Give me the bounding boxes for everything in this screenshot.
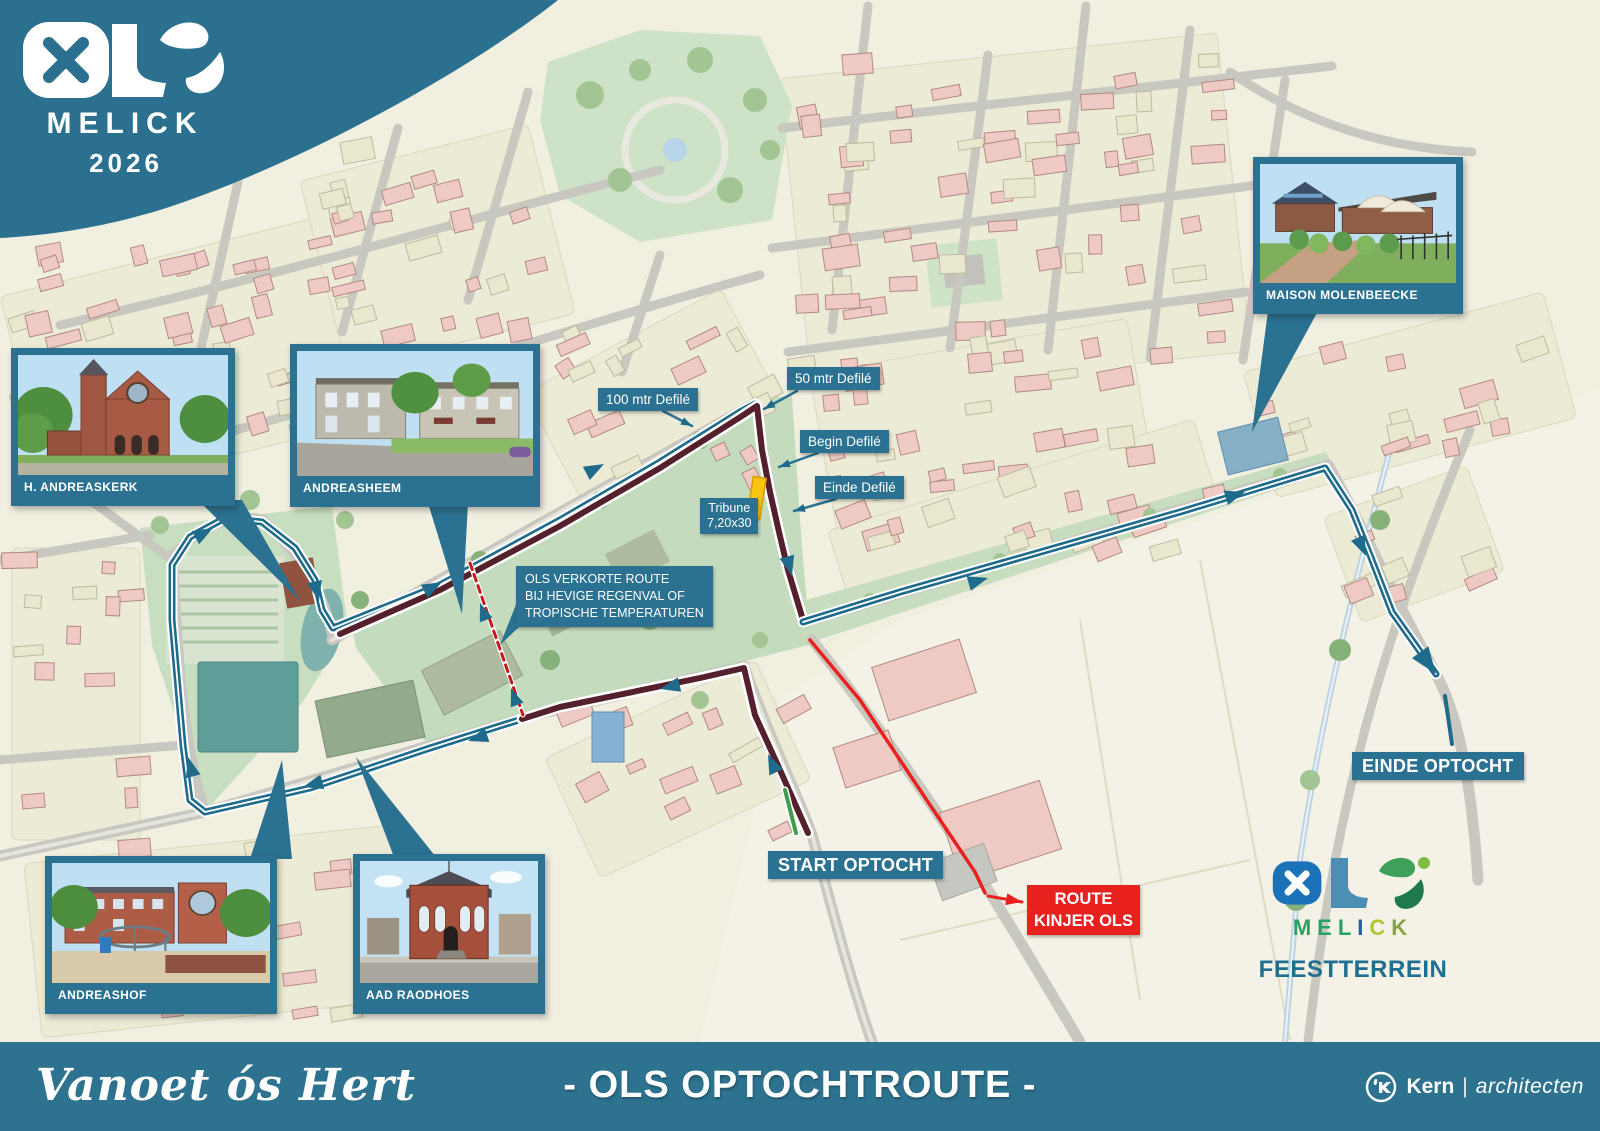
ols-optochtroute-poster: MELICK 2026 100 mtr Defilé 50 mtr Defilé…	[0, 0, 1600, 1131]
label-verkorte-route: OLS VERKORTE ROUTE BIJ HEVIGE REGENVAL O…	[516, 566, 713, 627]
ols-logo-o-icon	[1271, 856, 1325, 910]
label-kinjer-line2: KINJER OLS	[1034, 910, 1133, 932]
credit-kern: Kern	[1406, 1075, 1454, 1099]
banner-year: 2026	[89, 148, 163, 178]
label-verkorte-line1: OLS VERKORTE ROUTE	[525, 571, 704, 588]
label-einde-defile: Einde Defilé	[815, 476, 904, 499]
feestterrein-caption: FEESTTERREIN	[1248, 956, 1458, 984]
poster-title: - OLS OPTOCHTROUTE -	[563, 1064, 1036, 1107]
inset-caption: ANDREASHEEM	[297, 476, 533, 500]
inset-aad-raodhoes: AAD RAODHOES	[353, 854, 545, 1014]
aad-raodhoes-photo	[360, 861, 538, 983]
ols-logo-ls-icon	[1327, 854, 1435, 912]
inset-caption: MAISON MOLENBEECKE	[1260, 283, 1456, 307]
credit-architecten: architecten	[1476, 1075, 1584, 1099]
label-begin-defile: Begin Defilé	[800, 430, 889, 453]
inset-h-andreaskerk: H. ANDREASKERK	[11, 348, 235, 506]
label-tribune-line2: 7,20x30	[707, 516, 751, 531]
maison-molenbeecke-photo	[1260, 164, 1456, 283]
andreasheem-photo	[297, 351, 533, 476]
credit-separator: |	[1462, 1075, 1467, 1099]
andreashof-photo	[52, 863, 270, 983]
label-verkorte-line2: BIJ HEVIGE REGENVAL OF	[525, 588, 704, 605]
inset-andreashof: ANDREASHOF	[45, 856, 277, 1014]
feest-melick-wordmark: MELICK	[1248, 916, 1458, 940]
inset-caption: H. ANDREASKERK	[18, 475, 228, 499]
h-andreaskerk-photo	[18, 355, 228, 475]
inset-andreasheem: ANDREASHEEM	[290, 344, 540, 507]
label-100-mtr-defile: 100 mtr Defilé	[598, 388, 698, 411]
label-tribune-line1: Tribune	[707, 501, 751, 516]
label-route-kinjer-ols: ROUTE KINJER OLS	[1027, 885, 1140, 935]
kern-logo-icon	[1364, 1070, 1398, 1104]
label-tribune: Tribune 7,20x30	[700, 498, 758, 534]
label-verkorte-line3: TROPISCHE TEMPERATUREN	[525, 605, 704, 622]
inset-caption: ANDREASHOF	[52, 983, 270, 1007]
ols-melick-color-logo	[1248, 854, 1458, 912]
banner-place: MELICK	[47, 107, 204, 140]
label-kinjer-line1: ROUTE	[1034, 888, 1133, 910]
feestterrein-logo: MELICK FEESTTERREIN	[1248, 854, 1458, 984]
inset-maison-molenbeecke: MAISON MOLENBEECKE	[1253, 157, 1463, 314]
inset-caption: AAD RAODHOES	[360, 983, 538, 1007]
label-50-mtr-defile: 50 mtr Defilé	[787, 367, 880, 390]
footer-bar: Vanoet ós Hert - OLS OPTOCHTROUTE - Kern…	[0, 1042, 1600, 1131]
footer-slogan: Vanoet ós Hert	[36, 1060, 416, 1111]
label-start-optocht: START OPTOCHT	[768, 851, 943, 879]
label-einde-optocht: EINDE OPTOCHT	[1352, 752, 1524, 780]
kern-architecten-credit: Kern | architecten	[1364, 1070, 1584, 1104]
